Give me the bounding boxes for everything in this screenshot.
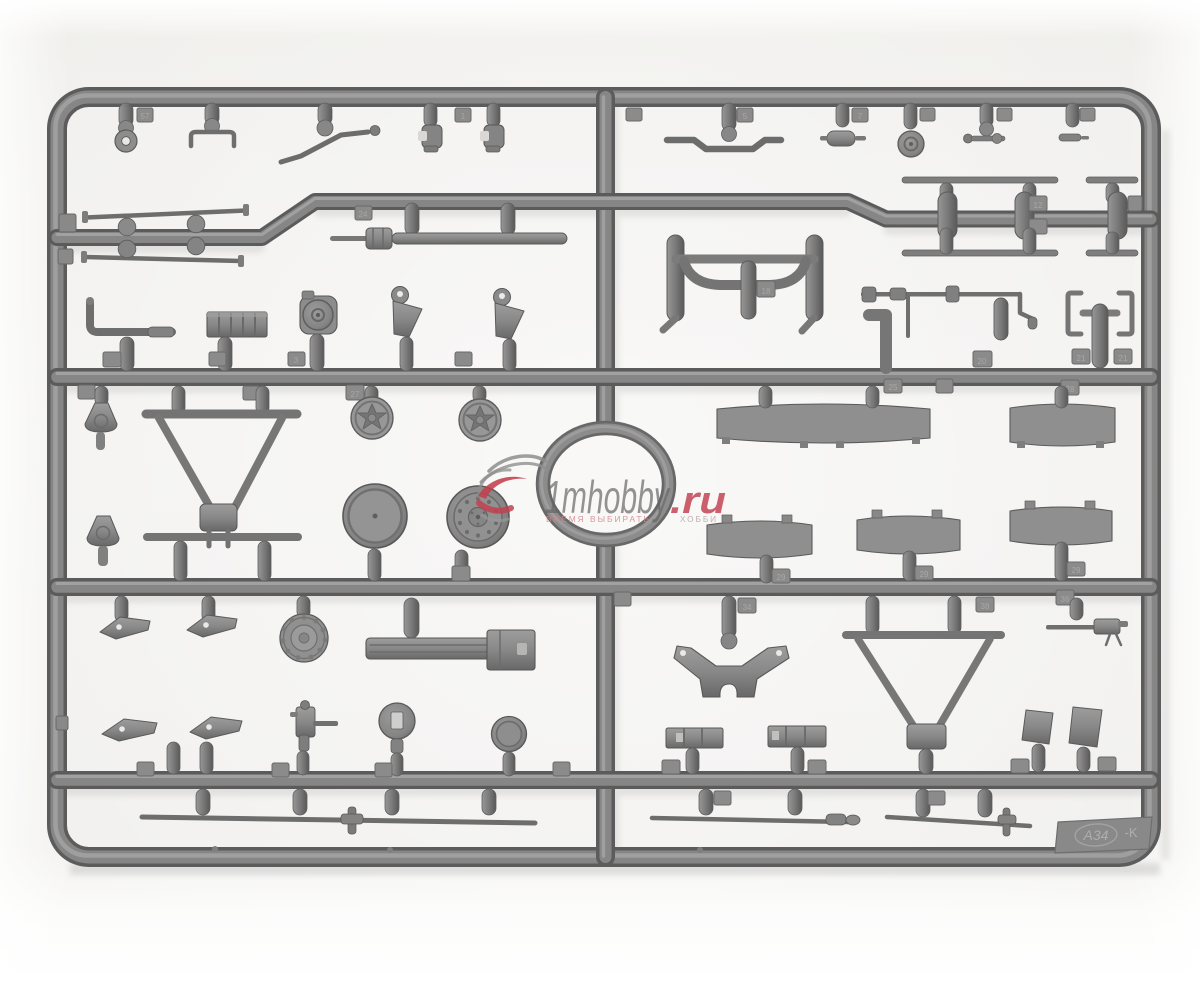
- svg-text:ХОББИ: ХОББИ: [680, 514, 718, 524]
- svg-text:12: 12: [1034, 201, 1043, 210]
- svg-text:3: 3: [294, 356, 299, 365]
- svg-text:21: 21: [1077, 354, 1086, 363]
- svg-text:18: 18: [762, 287, 771, 296]
- svg-text:7: 7: [858, 112, 863, 121]
- svg-text:29: 29: [1072, 566, 1081, 575]
- svg-text:24: 24: [359, 210, 368, 219]
- svg-text:ВРЕМЯ ВЫБИРАТЬ: ВРЕМЯ ВЫБИРАТЬ: [546, 514, 651, 524]
- svg-text:27: 27: [351, 390, 360, 399]
- svg-text:36: 36: [1061, 595, 1070, 604]
- svg-text:38: 38: [981, 602, 990, 611]
- svg-text:-K: -K: [1125, 825, 1138, 840]
- svg-text:21: 21: [1119, 354, 1128, 363]
- svg-text:A34: A34: [1083, 827, 1109, 843]
- svg-text:34: 34: [743, 603, 752, 612]
- svg-text:29: 29: [920, 570, 929, 579]
- svg-text:25: 25: [889, 383, 898, 392]
- svg-text:57: 57: [141, 112, 150, 121]
- svg-text:1: 1: [461, 112, 466, 121]
- svg-text:20: 20: [978, 357, 987, 366]
- svg-text:29: 29: [777, 573, 786, 582]
- svg-text:5: 5: [743, 112, 748, 121]
